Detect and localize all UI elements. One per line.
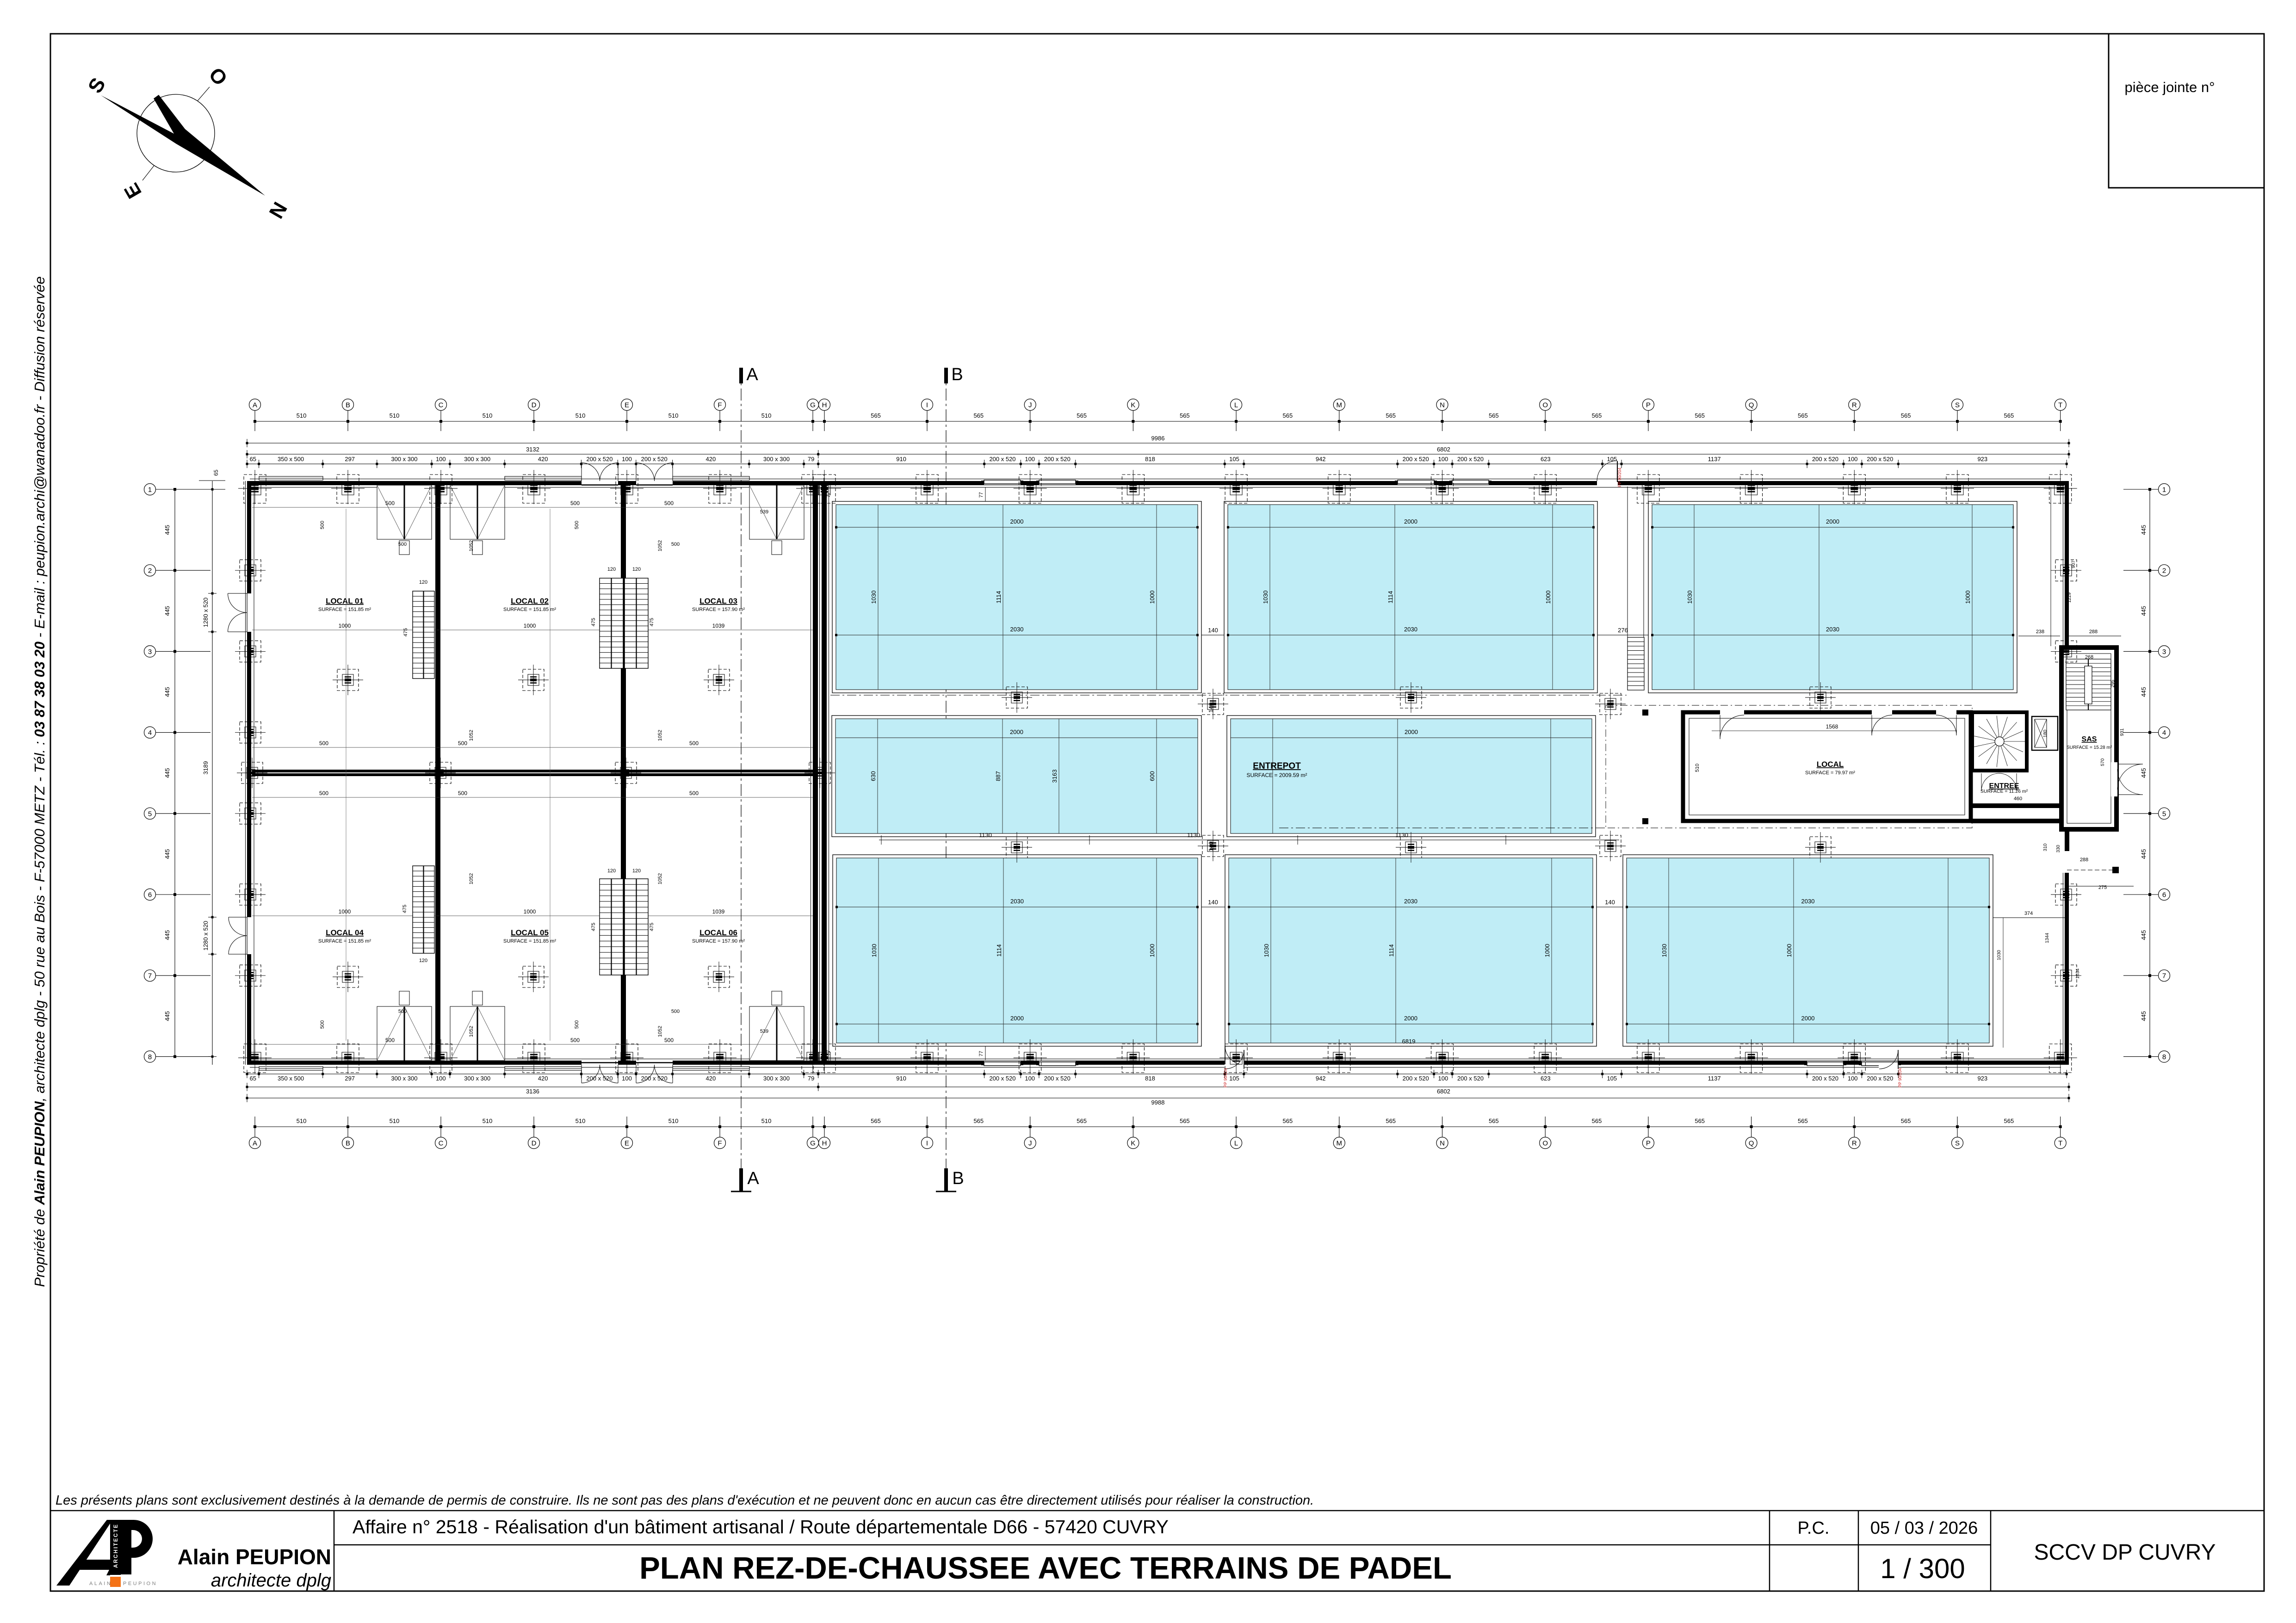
svg-text:1000: 1000 [1544, 944, 1551, 957]
svg-text:A: A [746, 365, 758, 384]
svg-text:ALAIN: ALAIN [89, 1581, 112, 1586]
svg-text:565: 565 [1386, 412, 1396, 419]
svg-text:288: 288 [2080, 857, 2088, 863]
svg-text:420: 420 [706, 456, 716, 463]
svg-text:1000: 1000 [1786, 944, 1793, 957]
svg-text:LOCAL 05: LOCAL 05 [511, 928, 549, 937]
svg-text:1000: 1000 [1545, 591, 1552, 604]
svg-text:SURFACE = 151.85 m²: SURFACE = 151.85 m² [318, 938, 371, 944]
svg-text:2000: 2000 [1010, 728, 1023, 735]
svg-text:ENTREPOT: ENTREPOT [1253, 761, 1301, 771]
svg-text:100: 100 [622, 1075, 632, 1082]
svg-text:6: 6 [148, 891, 152, 899]
svg-text:445: 445 [2140, 1011, 2147, 1021]
svg-text:500: 500 [385, 500, 395, 506]
svg-text:200 x 520: 200 x 520 [989, 1075, 1015, 1082]
svg-text:100: 100 [436, 456, 446, 463]
svg-text:565: 565 [871, 1117, 881, 1124]
svg-text:1030: 1030 [871, 944, 878, 957]
svg-text:565: 565 [1180, 1117, 1190, 1124]
svg-text:445: 445 [164, 849, 171, 859]
svg-text:T: T [2058, 401, 2062, 409]
svg-text:238: 238 [2036, 629, 2044, 635]
svg-text:1: 1 [148, 486, 152, 494]
svg-text:565: 565 [1901, 1117, 1911, 1124]
svg-text:445: 445 [2140, 525, 2147, 535]
svg-text:500: 500 [671, 542, 680, 547]
svg-text:1039: 1039 [712, 908, 725, 915]
svg-text:2000: 2000 [1801, 1015, 1815, 1022]
svg-text:PLAN REZ-DE-CHAUSSEE AVEC TERR: PLAN REZ-DE-CHAUSSEE AVEC TERRAINS DE PA… [639, 1551, 1452, 1586]
svg-text:565: 565 [1489, 412, 1499, 419]
svg-text:SURFACE = 79.97 m²: SURFACE = 79.97 m² [1805, 770, 1855, 776]
svg-text:1052: 1052 [469, 540, 474, 551]
svg-text:A: A [253, 401, 257, 409]
svg-text:288: 288 [2089, 629, 2098, 635]
svg-text:630: 630 [870, 771, 877, 781]
svg-text:A: A [253, 1140, 257, 1148]
svg-text:pièce jointe n°: pièce jointe n° [2124, 79, 2215, 95]
svg-text:565: 565 [1489, 1117, 1499, 1124]
svg-text:B: B [346, 401, 350, 409]
svg-text:N: N [1440, 1140, 1445, 1148]
svg-text:1000: 1000 [1149, 944, 1156, 957]
svg-text:G: G [810, 1140, 816, 1148]
svg-text:500: 500 [664, 500, 674, 506]
svg-text:818: 818 [1145, 1075, 1155, 1082]
svg-text:D: D [532, 401, 537, 409]
svg-text:2000: 2000 [1826, 518, 1839, 525]
svg-text:6: 6 [2162, 891, 2166, 899]
svg-text:2030: 2030 [1826, 626, 1839, 633]
svg-text:1000: 1000 [339, 908, 351, 915]
svg-text:100: 100 [1848, 1075, 1858, 1082]
svg-text:475: 475 [402, 905, 408, 913]
svg-text:510: 510 [668, 412, 679, 419]
svg-text:SAS: SAS [2082, 735, 2097, 743]
svg-text:510: 510 [668, 1117, 679, 1124]
svg-text:SURFACE = 15.28 m²: SURFACE = 15.28 m² [2067, 745, 2112, 750]
svg-text:T: T [2058, 1140, 2062, 1148]
svg-text:77: 77 [978, 492, 984, 498]
svg-text:923: 923 [1977, 1075, 1987, 1082]
svg-text:300 x 300: 300 x 300 [763, 456, 790, 463]
svg-text:1052: 1052 [657, 1026, 663, 1037]
svg-text:7: 7 [148, 972, 152, 980]
svg-text:297: 297 [345, 456, 355, 463]
svg-text:architecte dplg: architecte dplg [211, 1570, 331, 1591]
svg-text:Alain PEUPION: Alain PEUPION [178, 1545, 331, 1569]
svg-text:565: 565 [1695, 412, 1705, 419]
svg-text:J: J [1028, 1140, 1032, 1148]
svg-text:1030: 1030 [870, 591, 877, 604]
svg-text:2000: 2000 [1404, 518, 1417, 525]
svg-text:445: 445 [2140, 687, 2147, 697]
svg-text:120: 120 [607, 868, 616, 874]
svg-text:445: 445 [164, 687, 171, 697]
svg-text:931: 931 [2120, 728, 2125, 736]
svg-text:C: C [439, 401, 444, 409]
svg-text:3136: 3136 [526, 1088, 539, 1095]
svg-text:1280 x 520: 1280 x 520 [202, 598, 209, 627]
svg-text:565: 565 [1695, 1117, 1705, 1124]
svg-text:120: 120 [632, 567, 641, 572]
svg-text:1030: 1030 [1686, 591, 1693, 604]
svg-text:565: 565 [1798, 1117, 1808, 1124]
svg-text:5: 5 [2162, 810, 2166, 818]
svg-text:910: 910 [896, 1075, 906, 1082]
svg-text:2: 2 [2162, 567, 2166, 575]
svg-text:565: 565 [1798, 412, 1808, 419]
svg-text:510: 510 [576, 1117, 586, 1124]
svg-text:300 x 300: 300 x 300 [464, 1075, 490, 1082]
svg-text:475: 475 [403, 628, 408, 636]
svg-text:565: 565 [1283, 412, 1293, 419]
svg-text:140: 140 [1605, 899, 1615, 906]
svg-text:445: 445 [164, 768, 171, 778]
svg-text:1052: 1052 [657, 730, 663, 741]
svg-text:350 x 500: 350 x 500 [278, 456, 304, 463]
svg-text:100: 100 [622, 456, 632, 463]
svg-text:F: F [718, 401, 722, 409]
svg-text:120: 120 [632, 868, 641, 874]
svg-text:500: 500 [385, 1037, 395, 1043]
svg-text:200 x 520: 200 x 520 [1044, 456, 1071, 463]
svg-text:1052: 1052 [657, 540, 663, 551]
svg-text:445: 445 [2140, 930, 2147, 940]
svg-text:LOCAL 03: LOCAL 03 [699, 597, 737, 605]
svg-text:1114: 1114 [1387, 591, 1394, 604]
svg-text:200 x 520: 200 x 520 [1867, 456, 1893, 463]
svg-text:460: 460 [2014, 796, 2022, 802]
svg-text:9986: 9986 [1151, 435, 1165, 442]
svg-text:120: 120 [419, 958, 427, 963]
svg-text:200 x 520: 200 x 520 [1457, 456, 1484, 463]
svg-text:1000: 1000 [339, 623, 351, 629]
svg-text:4: 4 [2162, 729, 2166, 737]
svg-text:1137: 1137 [1708, 1075, 1721, 1082]
svg-text:1000: 1000 [524, 623, 536, 629]
svg-text:M: M [1337, 401, 1343, 409]
svg-text:1130: 1130 [1395, 832, 1408, 839]
svg-text:310: 310 [2043, 843, 2048, 851]
svg-text:R: R [1852, 1140, 1857, 1148]
svg-text:65: 65 [213, 469, 219, 476]
svg-text:374: 374 [2024, 911, 2033, 916]
svg-text:79: 79 [808, 1075, 814, 1082]
svg-text:100: 100 [1438, 456, 1448, 463]
svg-text:E: E [625, 401, 629, 409]
svg-text:565: 565 [973, 412, 984, 419]
svg-text:S: S [1955, 401, 1960, 409]
svg-text:330: 330 [2056, 845, 2061, 852]
svg-text:1: 1 [2162, 486, 2166, 494]
svg-text:500: 500 [689, 740, 699, 747]
svg-text:2: 2 [148, 567, 152, 575]
svg-text:P: P [1646, 401, 1651, 409]
svg-text:3: 3 [148, 648, 152, 656]
svg-text:140: 140 [1208, 899, 1218, 906]
svg-text:P: P [1646, 1140, 1651, 1148]
svg-text:1344: 1344 [2045, 932, 2050, 943]
svg-text:570: 570 [2100, 758, 2105, 766]
svg-text:510: 510 [390, 412, 400, 419]
svg-text:565: 565 [1592, 412, 1602, 419]
svg-text:SURFACE = 11.26 m²: SURFACE = 11.26 m² [1980, 789, 2028, 794]
svg-text:276: 276 [1618, 627, 1628, 634]
svg-text:445: 445 [164, 930, 171, 940]
svg-text:565: 565 [871, 412, 881, 419]
svg-text:SCCV DP CUVRY: SCCV DP CUVRY [2034, 1540, 2216, 1565]
svg-text:510: 510 [297, 412, 307, 419]
svg-text:510: 510 [390, 1117, 400, 1124]
svg-text:500: 500 [319, 740, 328, 747]
svg-text:500: 500 [574, 1020, 580, 1029]
svg-text:1030: 1030 [1263, 944, 1270, 957]
svg-text:445: 445 [164, 525, 171, 535]
svg-text:565: 565 [1386, 1117, 1396, 1124]
svg-text:500: 500 [398, 542, 407, 547]
svg-text:P.C.: P.C. [1797, 1518, 1829, 1538]
svg-text:500: 500 [664, 1037, 674, 1043]
svg-text:600: 600 [1149, 771, 1156, 781]
svg-text:2000: 2000 [1010, 1015, 1024, 1022]
svg-text:E: E [625, 1140, 629, 1148]
svg-text:180: 180 [2043, 729, 2048, 737]
svg-text:445: 445 [2140, 768, 2147, 778]
svg-text:1039: 1039 [712, 623, 725, 629]
svg-text:65: 65 [250, 456, 256, 463]
svg-text:77: 77 [978, 1051, 984, 1056]
svg-text:300 x 300: 300 x 300 [464, 456, 490, 463]
svg-text:445: 445 [2140, 606, 2147, 616]
svg-text:Q: Q [1749, 1140, 1754, 1148]
svg-text:200 x 520: 200 x 520 [1812, 1075, 1838, 1082]
svg-text:500: 500 [458, 790, 467, 796]
svg-text:565: 565 [1077, 1117, 1087, 1124]
svg-text:S: S [1955, 1140, 1960, 1148]
svg-text:I: I [926, 1140, 928, 1148]
svg-text:65: 65 [250, 1075, 256, 1082]
svg-text:79: 79 [808, 456, 814, 463]
svg-text:200 x 520: 200 x 520 [1867, 1075, 1893, 1082]
svg-text:6802: 6802 [1437, 446, 1450, 453]
svg-text:L: L [1234, 401, 1238, 409]
svg-text:105: 105 [1607, 1075, 1617, 1082]
svg-text:100: 100 [1848, 456, 1858, 463]
svg-text:420: 420 [706, 1075, 716, 1082]
svg-text:510: 510 [297, 1117, 307, 1124]
svg-text:1052: 1052 [469, 1026, 474, 1037]
svg-text:N: N [1440, 401, 1445, 409]
svg-text:565: 565 [1077, 412, 1087, 419]
svg-text:8: 8 [148, 1053, 152, 1061]
svg-text:H: H [822, 401, 827, 409]
svg-text:05 / 03 / 2026: 05 / 03 / 2026 [1870, 1518, 1978, 1538]
svg-text:D: D [532, 1140, 537, 1148]
svg-text:350 x 500: 350 x 500 [278, 1075, 304, 1082]
svg-text:1034: 1034 [2075, 968, 2080, 979]
svg-text:942: 942 [1316, 1075, 1326, 1082]
svg-text:623: 623 [1541, 1075, 1551, 1082]
svg-text:500: 500 [570, 1037, 580, 1043]
svg-text:942: 942 [1316, 456, 1326, 463]
svg-text:500: 500 [320, 1020, 325, 1029]
svg-text:510: 510 [483, 1117, 493, 1124]
svg-text:300 x 300: 300 x 300 [763, 1075, 790, 1082]
svg-text:B: B [951, 365, 963, 384]
svg-text:SURFACE = 151.85 m²: SURFACE = 151.85 m² [318, 607, 371, 612]
svg-text:5: 5 [148, 810, 152, 818]
svg-text:200 x 520: 200 x 520 [1403, 1075, 1429, 1082]
svg-text:100: 100 [1025, 456, 1035, 463]
svg-text:3189: 3189 [202, 761, 209, 775]
svg-text:PP 90/204: PP 90/204 [1898, 1068, 1902, 1087]
svg-text:PP 90/204: PP 90/204 [1223, 1068, 1228, 1087]
svg-text:907: 907 [2071, 560, 2076, 568]
svg-text:2030: 2030 [1801, 898, 1815, 905]
svg-text:475: 475 [649, 923, 655, 931]
svg-text:2030: 2030 [1404, 626, 1417, 633]
svg-text:105: 105 [1229, 1075, 1239, 1082]
svg-text:565: 565 [2004, 412, 2014, 419]
svg-text:6819: 6819 [1402, 1038, 1416, 1045]
svg-text:3: 3 [2162, 648, 2166, 656]
svg-text:M: M [1337, 1140, 1343, 1148]
svg-text:510: 510 [761, 1117, 772, 1124]
svg-text:623: 623 [1541, 456, 1551, 463]
svg-text:1130: 1130 [1187, 832, 1200, 839]
svg-text:500: 500 [458, 740, 467, 747]
svg-text:200 x 520: 200 x 520 [641, 456, 668, 463]
svg-text:275: 275 [2098, 885, 2107, 890]
svg-text:O: O [1542, 401, 1548, 409]
svg-text:200 x 520: 200 x 520 [1403, 456, 1429, 463]
svg-text:J: J [1028, 401, 1032, 409]
svg-text:K: K [1131, 1140, 1135, 1148]
svg-text:420: 420 [538, 456, 548, 463]
svg-text:1568: 1568 [1826, 723, 1838, 730]
svg-text:H: H [822, 1140, 827, 1148]
svg-text:1114: 1114 [996, 944, 1003, 957]
svg-text:475: 475 [649, 618, 655, 626]
svg-text:200 x 520: 200 x 520 [1457, 1075, 1484, 1082]
svg-text:565: 565 [1180, 412, 1190, 419]
svg-text:SURFACE = 157.90 m²: SURFACE = 157.90 m² [692, 938, 745, 944]
svg-text:Q: Q [1749, 401, 1754, 409]
svg-text:1130: 1130 [979, 832, 992, 839]
svg-text:2000: 2000 [1404, 1015, 1417, 1022]
svg-text:O: O [1542, 1140, 1548, 1148]
svg-text:3132: 3132 [526, 446, 539, 453]
svg-text:SURFACE = 151.85 m²: SURFACE = 151.85 m² [503, 607, 556, 612]
svg-text:1000: 1000 [1149, 591, 1156, 604]
svg-text:A: A [747, 1169, 759, 1188]
svg-text:7: 7 [2162, 972, 2166, 980]
svg-text:SURFACE = 151.85 m²: SURFACE = 151.85 m² [503, 938, 556, 944]
svg-text:510: 510 [1695, 764, 1700, 772]
svg-text:923: 923 [1977, 456, 1987, 463]
svg-text:4: 4 [148, 729, 152, 737]
svg-text:1137: 1137 [1708, 456, 1721, 463]
svg-text:L: L [1234, 1140, 1238, 1148]
svg-text:500: 500 [574, 521, 580, 529]
svg-text:LOCAL 04: LOCAL 04 [326, 928, 364, 937]
svg-text:565: 565 [1901, 412, 1911, 419]
svg-text:1052: 1052 [657, 873, 663, 884]
svg-text:2030: 2030 [1404, 898, 1417, 905]
svg-text:LOCAL 06: LOCAL 06 [699, 928, 737, 937]
svg-text:539: 539 [760, 1029, 768, 1034]
svg-text:100: 100 [1438, 1075, 1448, 1082]
svg-text:300 x 300: 300 x 300 [391, 456, 417, 463]
svg-text:LOCAL 02: LOCAL 02 [511, 597, 549, 605]
svg-text:LOCAL: LOCAL [1817, 760, 1844, 769]
svg-text:Les présents plans sont exclus: Les présents plans sont exclusivement de… [56, 1493, 1314, 1508]
svg-text:PEUPION: PEUPION [123, 1581, 157, 1586]
svg-text:1030: 1030 [1997, 950, 2002, 960]
svg-text:500: 500 [320, 521, 325, 529]
svg-text:910: 910 [896, 456, 906, 463]
svg-text:9988: 9988 [1151, 1099, 1165, 1106]
svg-text:475: 475 [591, 923, 596, 931]
svg-text:887: 887 [995, 771, 1002, 781]
svg-text:1030: 1030 [1661, 944, 1668, 957]
svg-text:120: 120 [419, 580, 427, 585]
svg-text:500: 500 [689, 790, 699, 796]
svg-text:6802: 6802 [1437, 1088, 1450, 1095]
svg-text:C: C [439, 1140, 444, 1148]
svg-text:8: 8 [2162, 1053, 2166, 1061]
svg-text:2030: 2030 [1010, 898, 1024, 905]
svg-text:3163: 3163 [1051, 770, 1058, 783]
svg-text:PP 90/204: PP 90/204 [1617, 468, 1622, 487]
svg-text:2000: 2000 [1405, 728, 1418, 735]
svg-text:G: G [810, 401, 816, 409]
svg-text:100: 100 [436, 1075, 446, 1082]
svg-text:100: 100 [1025, 1075, 1035, 1082]
svg-text:1280 x 520: 1280 x 520 [202, 921, 209, 950]
svg-text:500: 500 [671, 1009, 680, 1014]
svg-text:B: B [952, 1169, 964, 1188]
svg-text:2000: 2000 [1010, 518, 1024, 525]
svg-text:445: 445 [2140, 849, 2147, 859]
svg-text:300 x 300: 300 x 300 [391, 1075, 417, 1082]
svg-text:R: R [1852, 401, 1857, 409]
svg-text:1052: 1052 [469, 730, 474, 741]
svg-text:Affaire n° 2518 - Réalisation: Affaire n° 2518 - Réalisation d'un bâtim… [353, 1516, 1169, 1537]
svg-text:LOCAL 01: LOCAL 01 [326, 597, 364, 605]
svg-text:500: 500 [319, 790, 328, 796]
svg-text:1 / 300: 1 / 300 [1880, 1553, 1965, 1584]
svg-text:500: 500 [570, 500, 580, 506]
svg-text:200 x 520: 200 x 520 [1812, 456, 1838, 463]
svg-text:445: 445 [164, 1011, 171, 1021]
svg-text:510: 510 [761, 412, 772, 419]
svg-text:140: 140 [1208, 627, 1218, 634]
svg-text:1000: 1000 [1964, 591, 1971, 604]
svg-text:Propriété de Alain PEUPION,: Propriété de Alain PEUPION, architecte d… [31, 276, 48, 1287]
svg-text:297: 297 [345, 1075, 355, 1082]
svg-text:K: K [1131, 401, 1135, 409]
svg-text:565: 565 [1283, 1117, 1293, 1124]
svg-text:818: 818 [1145, 456, 1155, 463]
svg-text:1229: 1229 [2067, 592, 2072, 603]
svg-text:475: 475 [591, 618, 596, 626]
svg-text:510: 510 [483, 412, 493, 419]
svg-text:SURFACE = 157.90 m²: SURFACE = 157.90 m² [692, 607, 745, 612]
svg-text:200 x 520: 200 x 520 [586, 456, 613, 463]
